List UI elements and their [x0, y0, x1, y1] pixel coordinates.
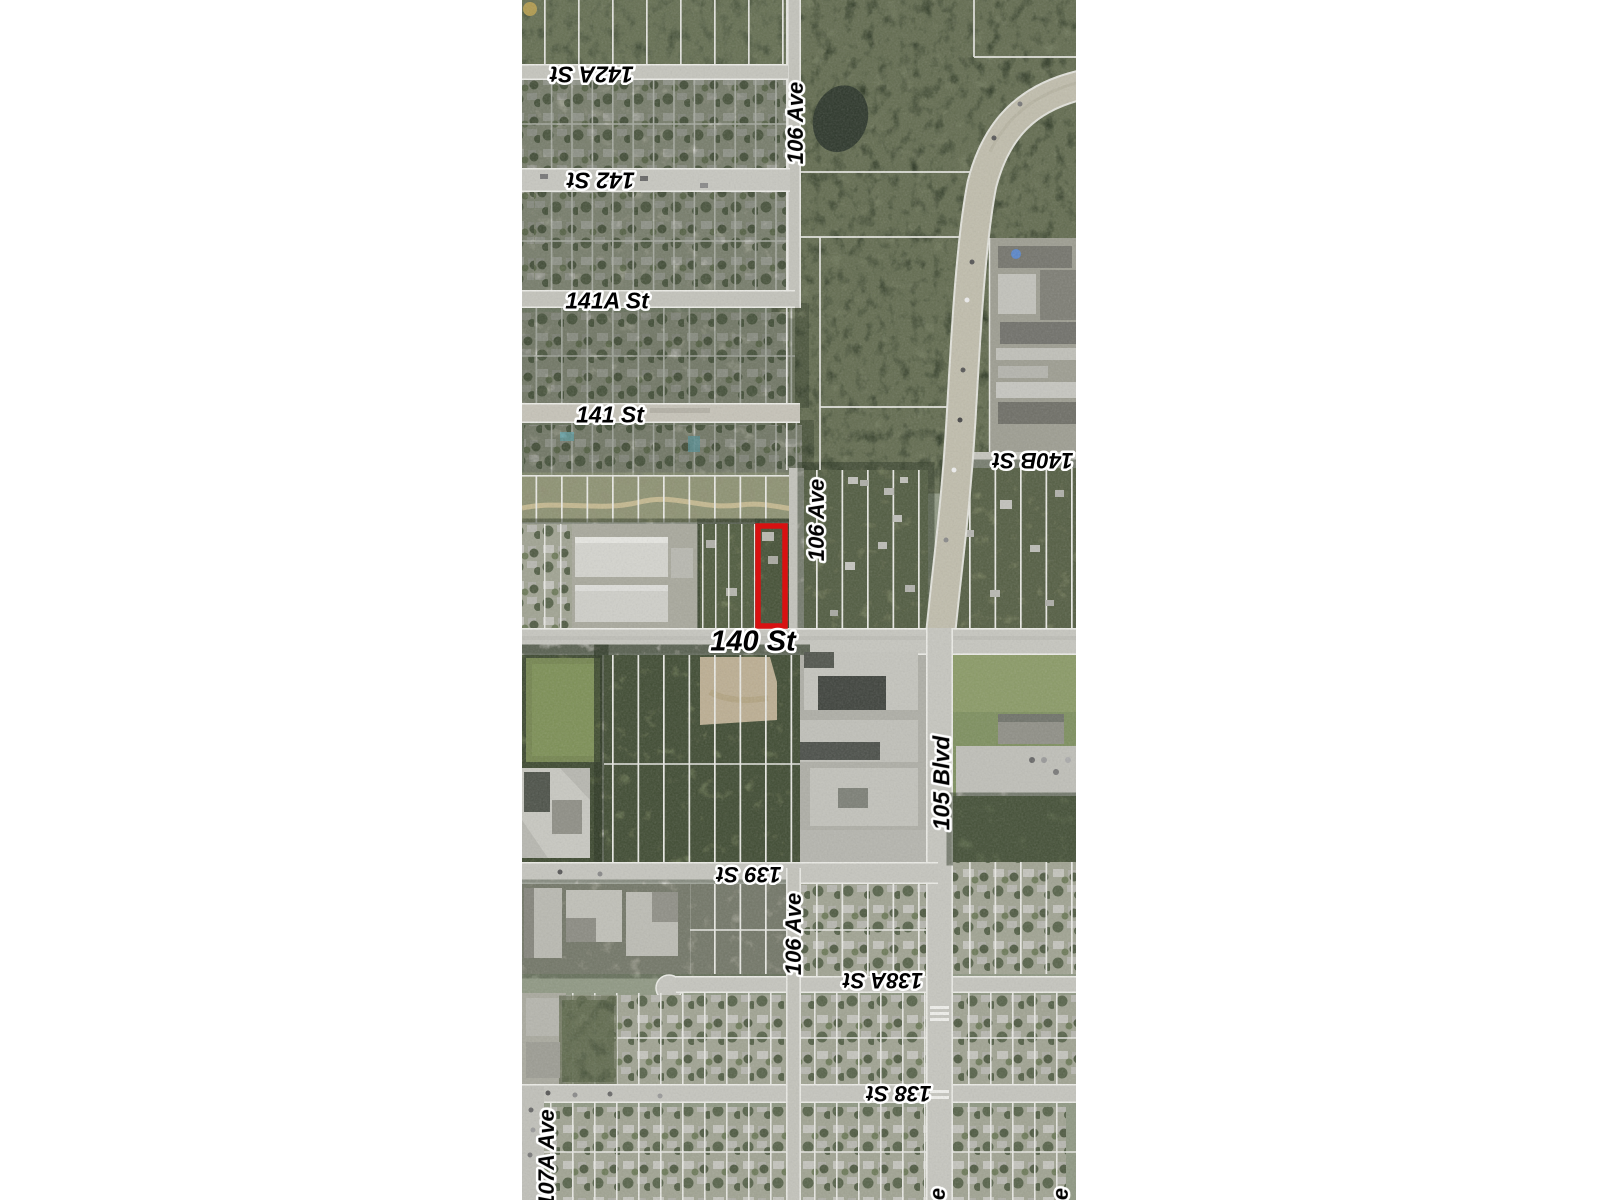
svg-text:142 St: 142 St: [566, 168, 635, 194]
svg-text:140B St: 140B St: [991, 448, 1073, 473]
svg-text:106 Ave: 106 Ave: [781, 893, 806, 975]
svg-text:106 Ave: 106 Ave: [783, 82, 808, 164]
svg-text:141 St: 141 St: [576, 401, 645, 427]
svg-text:e: e: [925, 1188, 950, 1200]
svg-text:105 Blvd: 105 Blvd: [928, 735, 954, 831]
svg-text:141A St: 141A St: [565, 287, 650, 313]
svg-text:138A St: 138A St: [841, 968, 923, 993]
svg-text:106 Ave: 106 Ave: [804, 479, 829, 561]
svg-text:e: e: [1048, 1188, 1073, 1200]
svg-text:142A St: 142A St: [549, 62, 634, 88]
svg-text:138 St: 138 St: [865, 1081, 931, 1106]
svg-text:140 St: 140 St: [710, 625, 797, 657]
svg-text:107A Ave: 107A Ave: [534, 1109, 559, 1200]
svg-text:139 St: 139 St: [715, 862, 781, 887]
